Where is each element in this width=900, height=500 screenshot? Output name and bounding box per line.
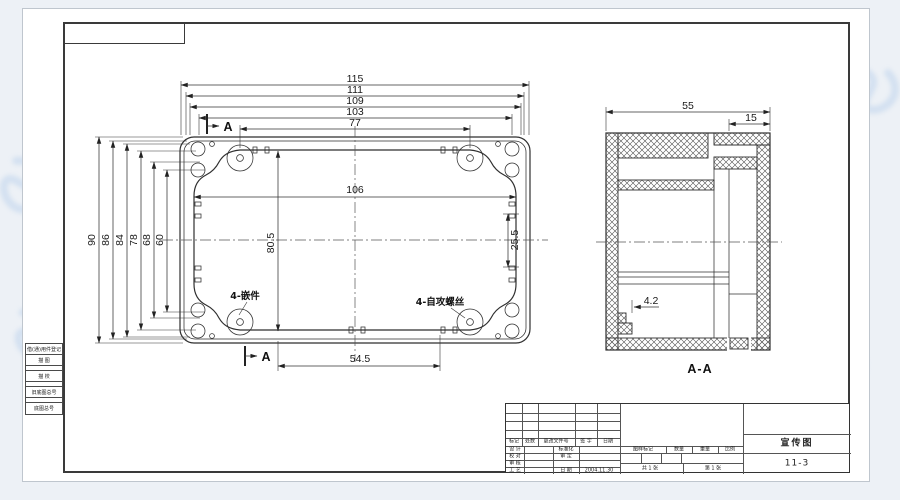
revision-header: 签 字: [580, 440, 592, 445]
register-label: 借(通)用件登记: [27, 346, 61, 353]
sheet-number: 第 1 张: [705, 466, 721, 471]
role-label: 校 对: [509, 454, 521, 459]
divider: [575, 404, 576, 446]
drawing-number: 11-3: [785, 459, 809, 468]
revision-header: 处数: [525, 440, 535, 445]
stamp-header: 数量: [674, 447, 684, 452]
old-master-label: 旧底图总号: [31, 389, 56, 396]
role-label: 工 艺: [509, 468, 521, 473]
drawing-title: 宣传图: [780, 440, 813, 449]
revision-header: 日期: [603, 440, 613, 445]
approval-label: 标准化: [558, 447, 573, 452]
divider: [692, 446, 693, 453]
divider: [743, 434, 851, 435]
divider: [743, 404, 744, 474]
divider: [683, 463, 684, 474]
stamp-header: 比例: [725, 447, 735, 452]
divider: [506, 421, 620, 422]
revision-header: 标记: [509, 440, 519, 445]
sheet-total: 共 1 张: [642, 466, 658, 471]
divider: [666, 446, 667, 453]
divider: [538, 404, 539, 446]
divider: [579, 446, 580, 474]
tracing-label: 描 图: [38, 357, 50, 364]
approval-label: 日 期: [560, 468, 572, 473]
divider: [553, 446, 554, 474]
divider: [506, 430, 620, 431]
divider: [641, 453, 642, 463]
master-label: 底图总号: [34, 405, 54, 412]
title-block: 标记 处数 更改文件号 签 字 日期 设 计 校 对 审 核 工 艺 标准化 审…: [505, 403, 850, 473]
stamp-header: 图样标记: [633, 447, 653, 452]
divider: [597, 404, 598, 446]
frame-corner-box: [65, 24, 185, 44]
approval-label: 审 定: [560, 454, 572, 459]
trace-check-label: 描 校: [38, 373, 50, 380]
divider: [524, 446, 525, 474]
role-label: 设 计: [509, 447, 521, 452]
date-value: 2004.11.30: [585, 468, 614, 473]
divider: [506, 453, 743, 454]
divider: [718, 446, 719, 453]
divider: [620, 463, 743, 464]
divider: [743, 453, 851, 454]
stamp-header: 重量: [700, 447, 710, 452]
revision-header: 更改文件号: [543, 440, 568, 445]
divider: [522, 404, 523, 446]
role-label: 审 核: [509, 461, 521, 466]
side-record-strip: 借(通)用件登记 描 图 描 校 旧底图总号 底图总号: [25, 344, 63, 415]
master-box: 底图总号: [25, 402, 63, 415]
divider: [661, 453, 662, 463]
divider: [681, 453, 682, 463]
divider: [506, 413, 620, 414]
